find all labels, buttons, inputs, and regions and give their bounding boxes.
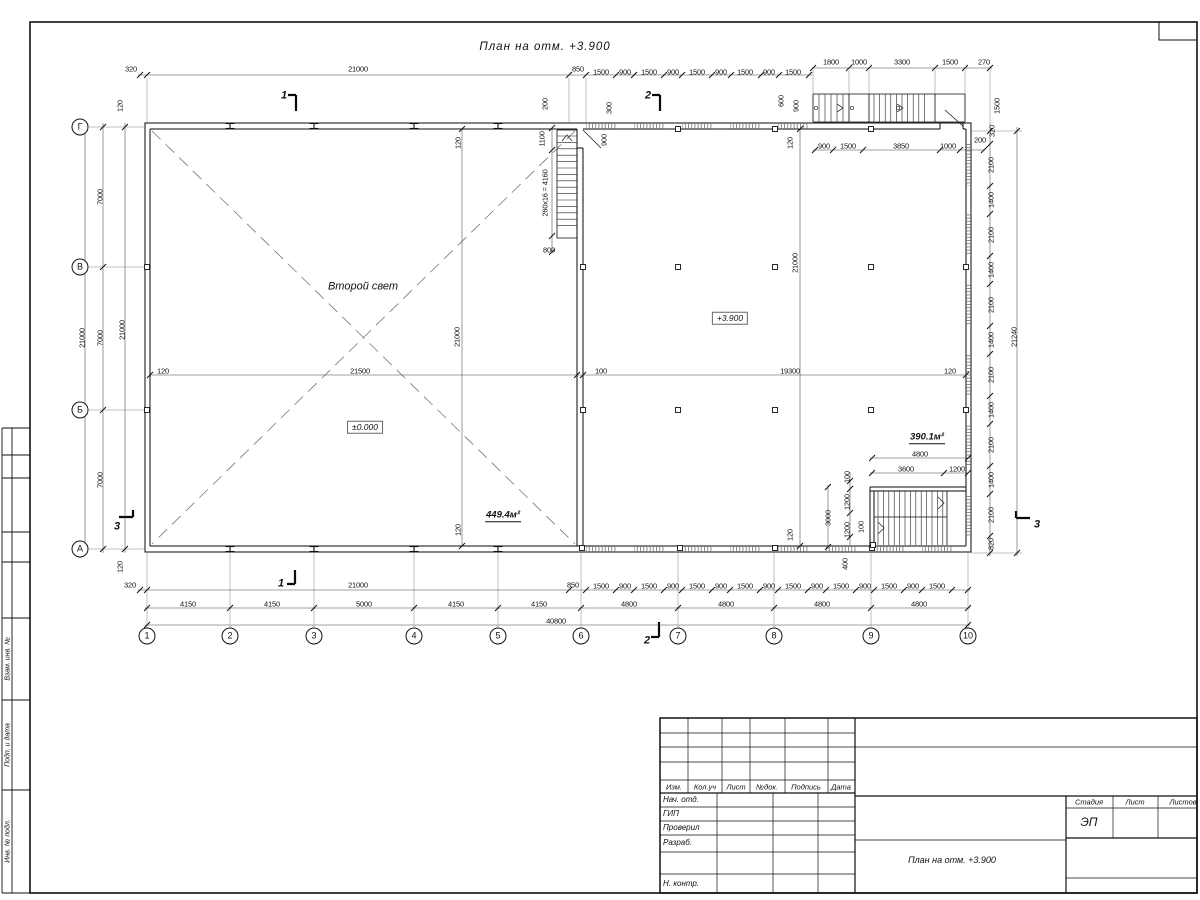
dim: 1500 xyxy=(993,98,1001,114)
dim: 21000 xyxy=(78,328,86,348)
axis-bubble: 3 xyxy=(306,628,323,645)
tb-listov-header: Листов xyxy=(1169,798,1196,806)
dim: 3600 xyxy=(898,465,914,473)
room-label: Второй свет xyxy=(328,282,398,293)
dim: 21240 xyxy=(1010,327,1018,347)
axis-bubble: 5 xyxy=(490,628,507,645)
dim: 100 xyxy=(843,471,851,483)
dim: 900 xyxy=(811,582,823,590)
axis-bubble: А xyxy=(72,541,89,558)
dim: 7000 xyxy=(96,472,104,488)
dim: 900 xyxy=(715,582,727,590)
dim: 4800 xyxy=(814,600,830,608)
dim: 120 xyxy=(786,137,794,149)
dim: 1200 xyxy=(843,522,851,538)
dim: 320 xyxy=(124,581,136,589)
dim: 900 xyxy=(667,68,679,76)
dim: 7000 xyxy=(96,189,104,205)
dim: 1000 xyxy=(940,142,956,150)
section-mark: 2 xyxy=(645,91,651,102)
level-mark: +3.900 xyxy=(712,312,748,325)
dim: 100 xyxy=(857,521,865,533)
section-mark: 3 xyxy=(114,522,120,533)
dim: 2100 xyxy=(987,227,995,243)
tb-col-podpis: Подпись xyxy=(791,783,821,791)
dim: 1400 xyxy=(987,332,995,348)
axis-bubble: 10 xyxy=(960,628,977,645)
dim: 120 xyxy=(116,100,124,112)
tb-row-gip: ГИП xyxy=(663,810,679,818)
dim: 1200 xyxy=(949,465,965,473)
dim: 1500 xyxy=(593,68,609,76)
dim: 21500 xyxy=(350,367,370,375)
dim: 1400 xyxy=(987,472,995,488)
dim: 320 xyxy=(125,65,137,73)
sheet: 3202100085015009001500900150090015009001… xyxy=(0,0,1200,900)
dim: 900 xyxy=(619,68,631,76)
dim: 1000 xyxy=(851,58,867,66)
dim: 7000 xyxy=(96,330,104,346)
section-mark: 1 xyxy=(281,91,287,102)
dim: 1100 xyxy=(538,131,546,146)
dim: 120 xyxy=(786,529,794,541)
dim: 1500 xyxy=(689,582,705,590)
dim: 1800 xyxy=(823,58,839,66)
labels-layer: 3202100085015009001500900150090015009001… xyxy=(0,0,1200,900)
dim: 120 xyxy=(454,137,462,149)
dim: 2100 xyxy=(987,367,995,383)
tb-row-nkontr: Н. контр. xyxy=(663,880,699,888)
dim: 1500 xyxy=(833,582,849,590)
dim: 21000 xyxy=(348,65,368,73)
dim: 2100 xyxy=(987,507,995,523)
dim: 4150 xyxy=(180,600,196,608)
axis-bubble: 6 xyxy=(573,628,590,645)
dim: 1500 xyxy=(689,68,705,76)
tb-col-koluch: Кол.уч xyxy=(694,783,716,791)
dim: 200 xyxy=(974,136,986,144)
dim: 1400 xyxy=(987,402,995,418)
dim: 2100 xyxy=(987,157,995,173)
dim: 21000 xyxy=(118,320,126,340)
dim: 900 xyxy=(619,582,631,590)
dim: 900 xyxy=(792,100,800,112)
axis-bubble: 2 xyxy=(222,628,239,645)
dim: 1500 xyxy=(881,582,897,590)
dim: 900 xyxy=(600,134,608,146)
dim: 900 xyxy=(715,68,727,76)
dim: 900 xyxy=(907,582,919,590)
dim: 1500 xyxy=(737,68,753,76)
margin-label-inv: Инв. № подл. xyxy=(5,819,12,862)
dim: 4150 xyxy=(448,600,464,608)
tb-col-ndok: №док. xyxy=(756,783,778,791)
tb-col-list: Лист xyxy=(726,783,745,791)
stair-note: 260x16 = 4160 xyxy=(541,169,549,216)
axis-bubble: Г xyxy=(72,119,89,136)
margin-label-vzam: Взам. инв. № xyxy=(5,637,12,680)
dim: 900 xyxy=(667,582,679,590)
dim: 19300 xyxy=(780,367,800,375)
axis-bubble: Б xyxy=(72,402,89,419)
dim: 40800 xyxy=(546,617,566,625)
tb-row-proveril: Проверил xyxy=(663,824,700,832)
plan-title: План на отм. +3.900 xyxy=(479,41,610,53)
dim: 820 xyxy=(987,538,995,550)
dim: 4800 xyxy=(621,600,637,608)
dim: 1500 xyxy=(641,68,657,76)
margin-label-podp: Подп. и дата xyxy=(5,723,12,767)
dim: 900 xyxy=(763,68,775,76)
dim: 1200 xyxy=(843,494,851,510)
dim: 120 xyxy=(944,367,956,375)
dim: 900 xyxy=(859,582,871,590)
dim: 5000 xyxy=(356,600,372,608)
dim: 1500 xyxy=(593,582,609,590)
dim: 21000 xyxy=(791,253,799,273)
dim: 21000 xyxy=(453,327,461,347)
section-mark: 3 xyxy=(1034,520,1040,531)
dim: 21000 xyxy=(348,581,368,589)
dim: 4800 xyxy=(912,450,928,458)
tb-row-razrab: Разраб. xyxy=(663,839,692,847)
section-mark: 1 xyxy=(278,579,284,590)
dim: 320 xyxy=(988,125,996,137)
tb-stadia-header: Стадия xyxy=(1075,798,1103,806)
dim: 300 xyxy=(605,102,613,114)
dim: 3300 xyxy=(894,58,910,66)
dim: 850 xyxy=(567,581,579,589)
dim: 400 xyxy=(841,558,849,570)
level-mark: ±0.000 xyxy=(347,421,383,434)
area-label: 390.1м² xyxy=(909,432,945,444)
dim: 100 xyxy=(595,367,607,375)
dim: 1400 xyxy=(987,262,995,278)
dim: 120 xyxy=(454,524,462,536)
tb-list-header: Лист xyxy=(1125,798,1144,806)
axis-bubble: 1 xyxy=(139,628,156,645)
dim: 900 xyxy=(818,142,830,150)
dim: 1500 xyxy=(929,582,945,590)
dim: 2100 xyxy=(987,297,995,313)
titleblock-stage-value: ЭП xyxy=(1080,815,1097,829)
dim: 2100 xyxy=(987,437,995,453)
dim: 1500 xyxy=(785,68,801,76)
dim: 3000 xyxy=(824,510,832,526)
dim: 270 xyxy=(978,58,990,66)
dim: 1500 xyxy=(641,582,657,590)
tb-col-izm: Изм. xyxy=(666,783,682,791)
dim: 3850 xyxy=(893,142,909,150)
dim: 120 xyxy=(116,561,124,573)
dim: 900 xyxy=(763,582,775,590)
dim: 800 xyxy=(543,246,555,254)
axis-bubble: 7 xyxy=(670,628,687,645)
dim: 4800 xyxy=(911,600,927,608)
area-label: 449.4м² xyxy=(485,510,521,522)
dim: 4150 xyxy=(531,600,547,608)
tb-col-data: Дата xyxy=(831,783,851,791)
axis-bubble: 4 xyxy=(406,628,423,645)
dim: 850 xyxy=(572,65,584,73)
axis-bubble: 9 xyxy=(863,628,880,645)
dim: 1500 xyxy=(737,582,753,590)
axis-bubble: В xyxy=(72,259,89,276)
titleblock-drawing-title: План на отм. +3.900 xyxy=(908,855,996,865)
dim: 600 xyxy=(777,95,785,107)
dim: 1500 xyxy=(942,58,958,66)
dim: 1500 xyxy=(785,582,801,590)
dim: 1500 xyxy=(840,142,856,150)
section-mark: 2 xyxy=(644,636,650,647)
dim: 4800 xyxy=(718,600,734,608)
axis-bubble: 8 xyxy=(766,628,783,645)
dim: 4150 xyxy=(264,600,280,608)
dim: 1400 xyxy=(987,192,995,208)
dim: 120 xyxy=(157,367,169,375)
tb-row-nachotd: Нач. отд. xyxy=(663,796,699,804)
dim: 200 xyxy=(541,98,549,110)
